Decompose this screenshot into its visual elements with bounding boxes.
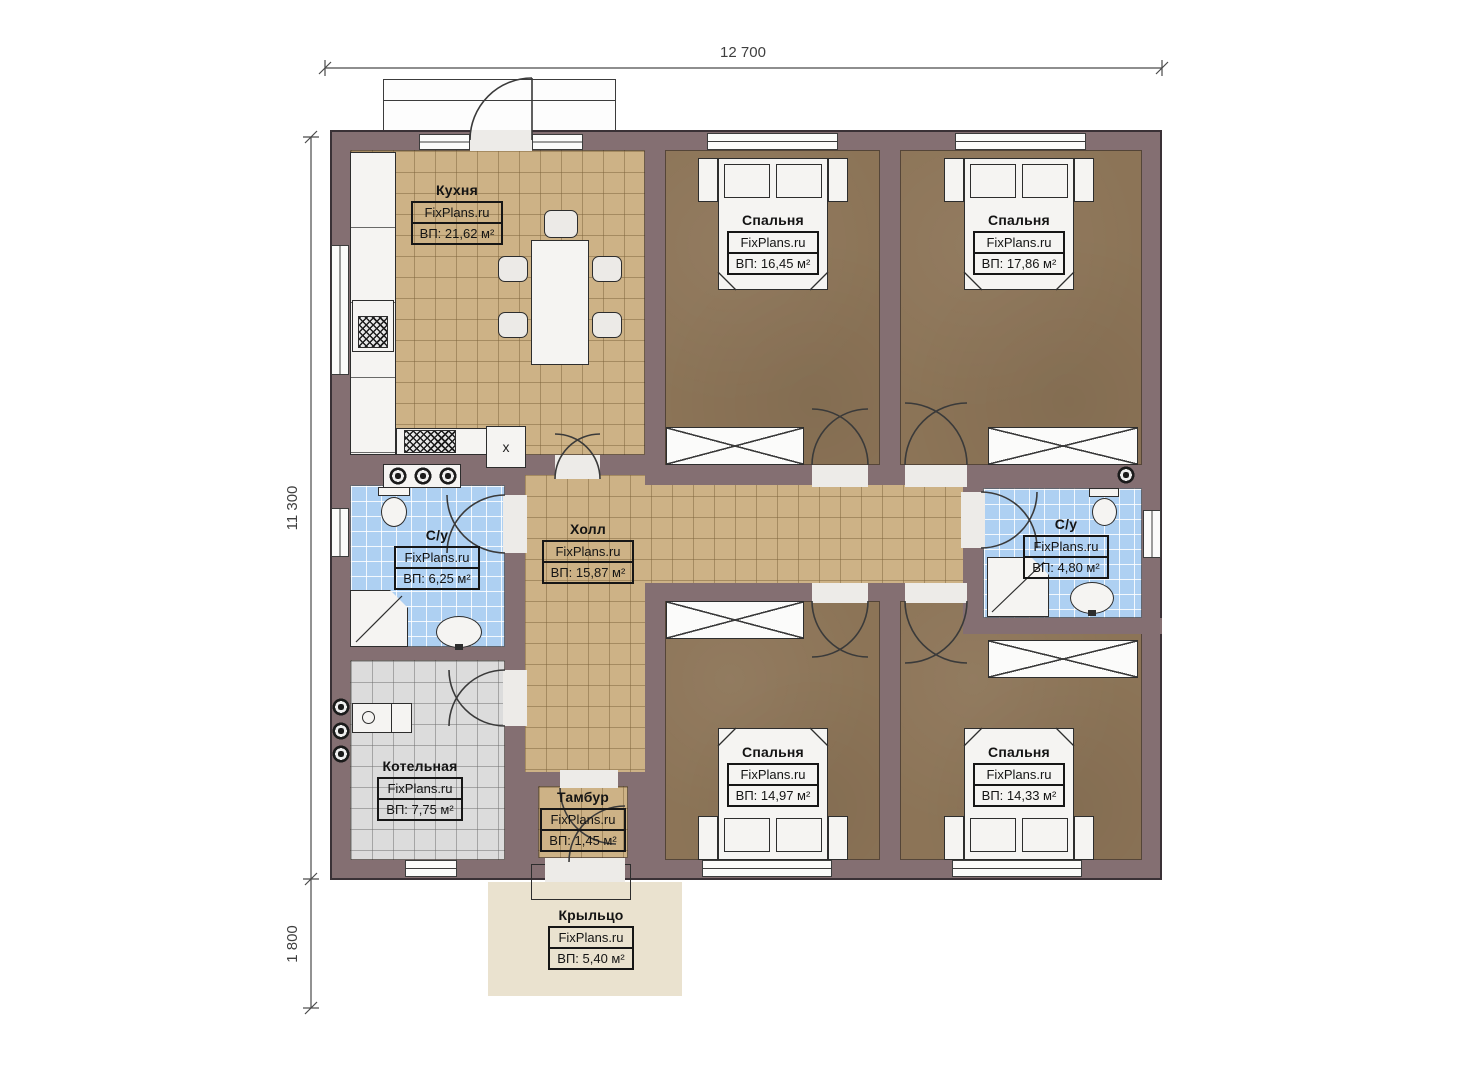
nightstand	[698, 816, 718, 860]
door-gap-kitchen-terrace	[470, 130, 532, 151]
stove	[404, 430, 456, 453]
nightstand	[944, 158, 964, 202]
room-label-vestibule: Тамбур FixPlans.ru ВП: 1,45 м²	[518, 789, 648, 852]
pillow	[776, 164, 822, 198]
nightstand	[828, 158, 848, 202]
room-label-bedroom-br: Спальня FixPlans.ru ВП: 14,33 м²	[954, 744, 1084, 807]
window-kitchen-left	[331, 245, 349, 375]
nightstand	[698, 158, 718, 202]
brand-watermark: FixPlans.ru	[1025, 537, 1106, 558]
room-info-box: FixPlans.ru ВП: 16,45 м²	[727, 231, 820, 275]
window-kitchen-top-right	[532, 134, 583, 150]
floor-plan-canvas: x	[0, 0, 1473, 1080]
burner-icon-2	[414, 467, 432, 485]
door-gap-bedroom-bl	[812, 583, 868, 603]
window-bedroom-tl-top	[707, 133, 838, 150]
pillow	[970, 818, 1016, 852]
room-label-porch: Крыльцо FixPlans.ru ВП: 5,40 м²	[526, 907, 656, 970]
door-gap-boiler	[503, 670, 527, 726]
door-gap-bedroom-tr	[905, 465, 967, 487]
brand-watermark: FixPlans.ru	[542, 810, 623, 831]
window-bedroom-bl-bottom	[702, 860, 832, 877]
brand-watermark: FixPlans.ru	[975, 765, 1064, 786]
room-info-box: FixPlans.ru ВП: 17,86 м²	[973, 231, 1066, 275]
door-gap-entrance	[545, 858, 625, 882]
meter-icon-1	[332, 698, 350, 716]
room-name: Спальня	[988, 744, 1050, 760]
closet-bedroom-bl	[666, 601, 804, 639]
brand-watermark: FixPlans.ru	[379, 779, 460, 800]
room-area: ВП: 6,25 м²	[396, 569, 477, 588]
room-area: ВП: 14,97 м²	[729, 786, 818, 805]
room-area: ВП: 5,40 м²	[550, 949, 631, 968]
brand-watermark: FixPlans.ru	[396, 548, 477, 569]
door-gap-kitchen-hall	[555, 455, 600, 479]
room-name: Холл	[570, 521, 606, 537]
room-label-kitchen: Кухня FixPlans.ru ВП: 21,62 м²	[392, 182, 522, 245]
burner-icon-3	[439, 467, 457, 485]
room-info-box: FixPlans.ru ВП: 21,62 м²	[411, 201, 504, 245]
room-info-box: FixPlans.ru ВП: 1,45 м²	[540, 808, 625, 852]
brand-watermark: FixPlans.ru	[729, 233, 818, 254]
room-area: ВП: 7,75 м²	[379, 800, 460, 819]
room-name: Кухня	[436, 182, 478, 198]
room-info-box: FixPlans.ru ВП: 7,75 м²	[377, 777, 462, 821]
room-label-bedroom-tr: Спальня FixPlans.ru ВП: 17,86 м²	[954, 212, 1084, 275]
chair	[544, 210, 578, 238]
fridge-box: x	[486, 426, 526, 468]
room-info-box: FixPlans.ru ВП: 14,33 м²	[973, 763, 1066, 807]
room-area: ВП: 4,80 м²	[1025, 558, 1106, 577]
closet-bedroom-tr	[988, 427, 1138, 465]
door-gap-bedroom-br	[905, 583, 967, 603]
brand-watermark: FixPlans.ru	[413, 203, 502, 224]
room-label-bath-left: С/у FixPlans.ru ВП: 6,25 м²	[372, 527, 502, 590]
room-name: Спальня	[988, 212, 1050, 228]
kitchen-sink	[358, 316, 388, 348]
brand-watermark: FixPlans.ru	[550, 928, 631, 949]
room-area: ВП: 1,45 м²	[542, 831, 623, 850]
dimension-top-width: 12 700	[720, 44, 766, 61]
water-heater-icon	[1117, 466, 1135, 484]
toilet-bowl	[381, 497, 407, 527]
room-name: С/у	[1055, 516, 1077, 532]
door-gap-bath-right	[961, 492, 985, 548]
nightstand	[1074, 816, 1094, 860]
meter-icon-3	[332, 745, 350, 763]
chair	[592, 256, 622, 282]
room-name: Котельная	[382, 758, 457, 774]
room-label-boiler: Котельная FixPlans.ru ВП: 7,75 м²	[355, 758, 485, 821]
closet-bedroom-tl	[666, 427, 804, 465]
room-info-box: FixPlans.ru ВП: 6,25 м²	[394, 546, 479, 590]
dimension-left-height: 11 300	[284, 486, 301, 531]
room-area: ВП: 21,62 м²	[413, 224, 502, 243]
room-area: ВП: 14,33 м²	[975, 786, 1064, 805]
window-boiler-bottom	[405, 860, 457, 877]
chair	[498, 312, 528, 338]
toilet-tank	[378, 487, 410, 496]
dimension-porch-height: 1 800	[284, 925, 301, 963]
room-area: ВП: 15,87 м²	[544, 563, 633, 582]
boiler-unit	[352, 703, 412, 733]
room-name: Спальня	[742, 212, 804, 228]
window-kitchen-top-left	[419, 134, 470, 150]
closet-bedroom-br	[988, 640, 1138, 678]
toilet-tank	[1089, 488, 1119, 497]
room-area: ВП: 17,86 м²	[975, 254, 1064, 273]
pillow	[1022, 818, 1068, 852]
boiler-unit-divider	[391, 704, 392, 732]
brand-watermark: FixPlans.ru	[975, 233, 1064, 254]
bath-right-bottom-wall	[963, 618, 1162, 634]
room-label-bedroom-bl: Спальня FixPlans.ru ВП: 14,97 м²	[708, 744, 838, 807]
meter-icon-2	[332, 722, 350, 740]
nightstand	[828, 816, 848, 860]
burner-icon-1	[389, 467, 407, 485]
room-label-bath-right: С/у FixPlans.ru ВП: 4,80 м²	[1001, 516, 1131, 579]
nightstand	[1074, 158, 1094, 202]
nightstand	[944, 816, 964, 860]
chair	[498, 256, 528, 282]
room-name: Спальня	[742, 744, 804, 760]
room-info-box: FixPlans.ru ВП: 5,40 м²	[548, 926, 633, 970]
sink-right-tap	[1088, 610, 1096, 616]
window-bedroom-br-bottom	[952, 860, 1082, 877]
brand-watermark: FixPlans.ru	[544, 542, 633, 563]
dining-table	[531, 240, 589, 365]
window-bath-left	[331, 508, 349, 557]
window-bath-right	[1143, 510, 1161, 558]
pillow	[776, 818, 822, 852]
room-info-box: FixPlans.ru ВП: 15,87 м²	[542, 540, 635, 584]
chair	[592, 312, 622, 338]
room-area: ВП: 16,45 м²	[729, 254, 818, 273]
pillow	[970, 164, 1016, 198]
pillow	[1022, 164, 1068, 198]
boiler-unit-dial	[362, 711, 375, 724]
window-bedroom-tr-top	[955, 133, 1086, 150]
pillow	[724, 164, 770, 198]
fridge-mark: x	[503, 439, 510, 455]
door-gap-bedroom-tl	[812, 465, 868, 487]
room-label-bedroom-tl: Спальня FixPlans.ru ВП: 16,45 м²	[708, 212, 838, 275]
brand-watermark: FixPlans.ru	[729, 765, 818, 786]
room-info-box: FixPlans.ru ВП: 4,80 м²	[1023, 535, 1108, 579]
room-name: Крыльцо	[558, 907, 623, 923]
terrace-step-line	[384, 100, 615, 101]
sink-left-tap	[455, 644, 463, 650]
room-name: С/у	[426, 527, 448, 543]
room-info-box: FixPlans.ru ВП: 14,97 м²	[727, 763, 820, 807]
pillow	[724, 818, 770, 852]
room-label-hall: Холл FixPlans.ru ВП: 15,87 м²	[523, 521, 653, 584]
door-gap-vestibule	[560, 770, 618, 788]
room-name: Тамбур	[557, 789, 609, 805]
